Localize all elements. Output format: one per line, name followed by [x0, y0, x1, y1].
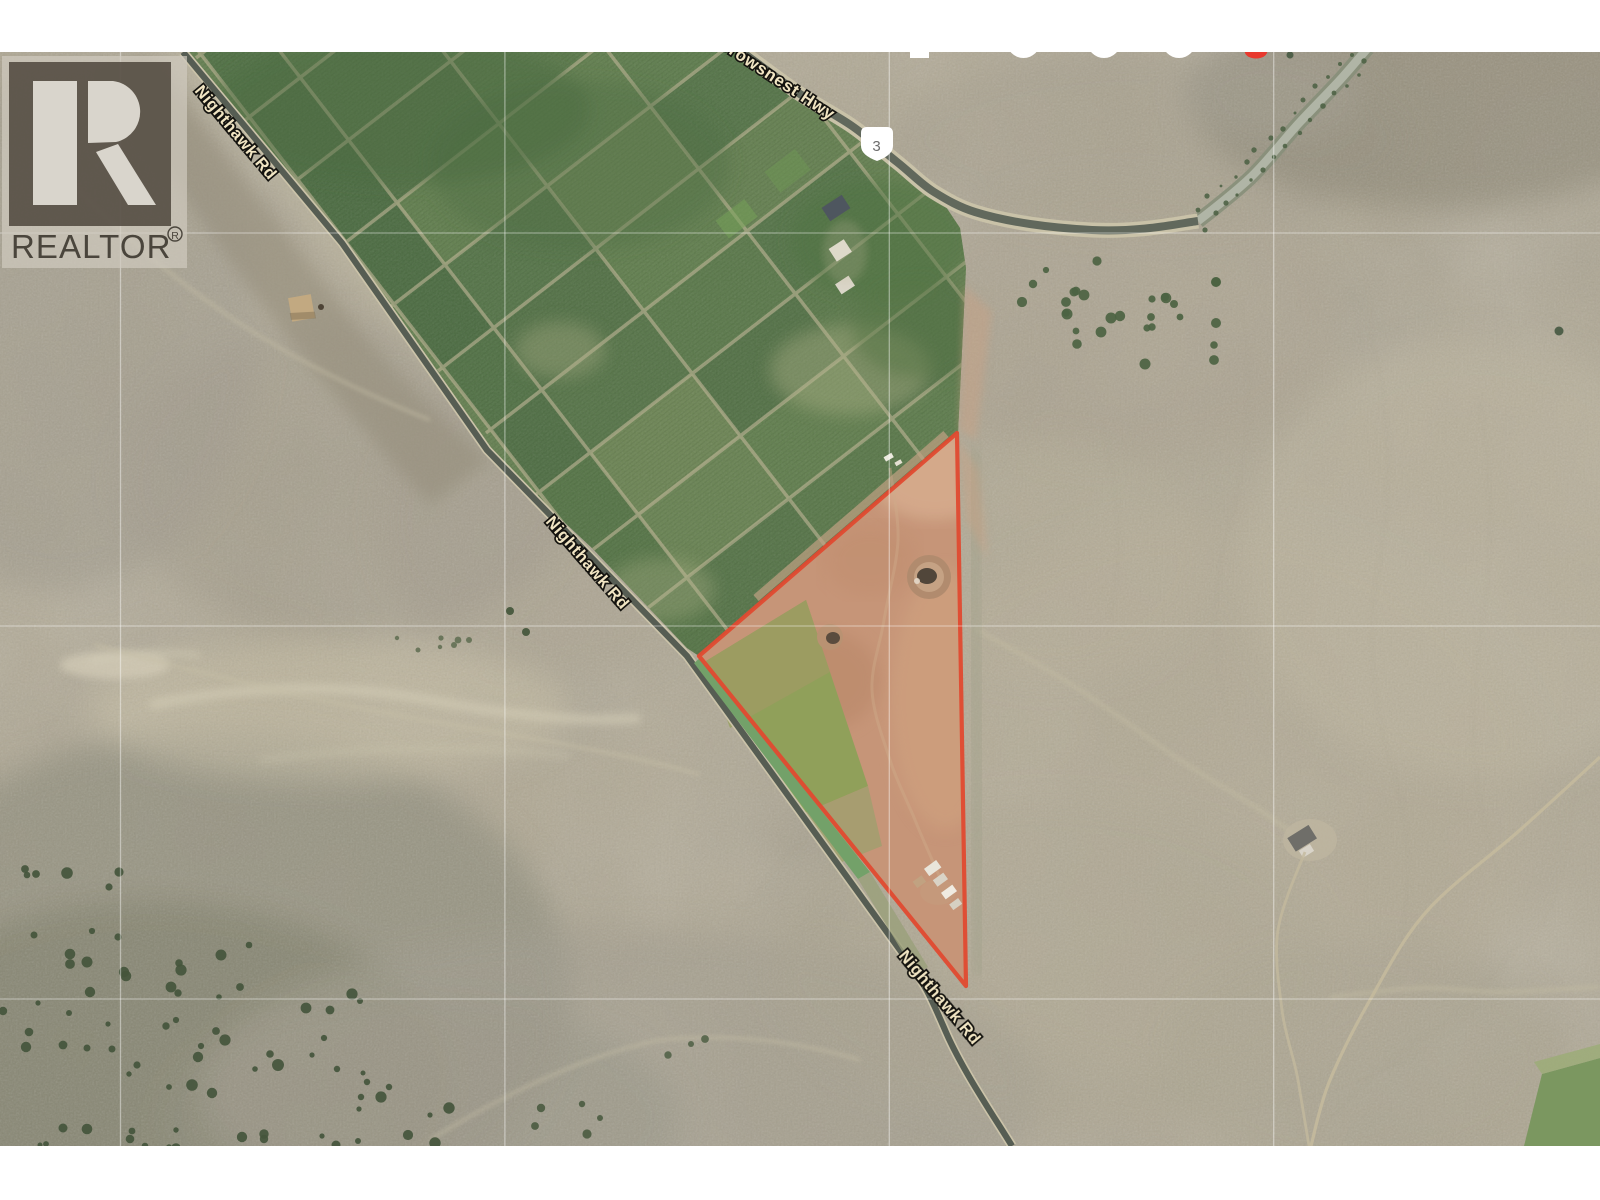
svg-text:REALTOR: REALTOR [11, 228, 172, 265]
svg-text:R: R [171, 230, 179, 242]
svg-text:3: 3 [872, 138, 880, 155]
